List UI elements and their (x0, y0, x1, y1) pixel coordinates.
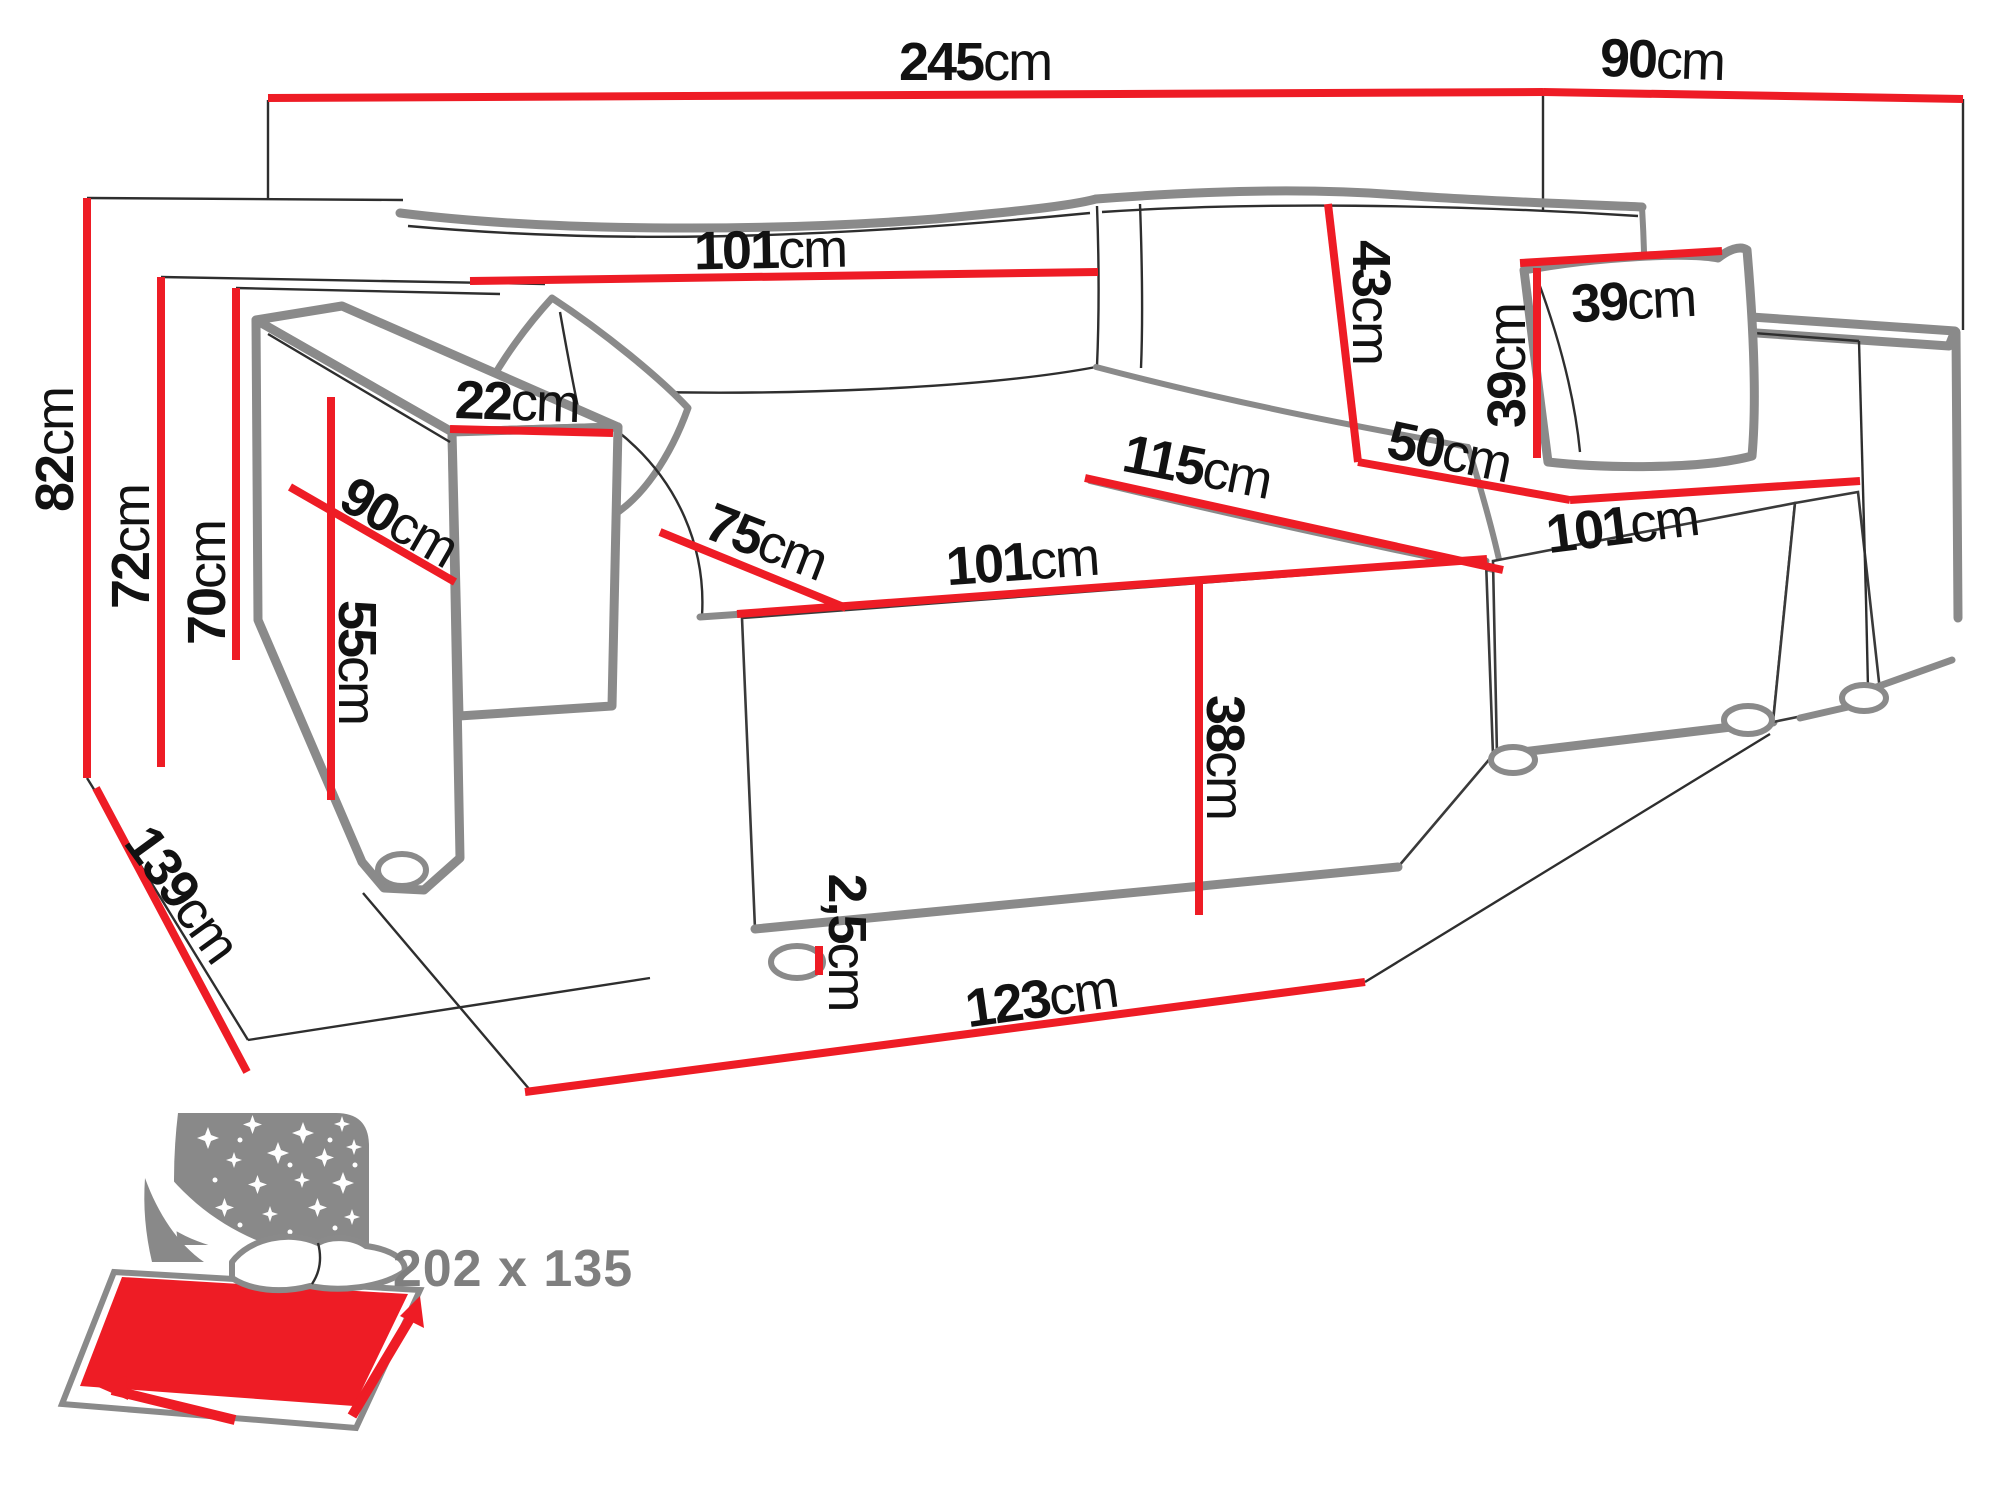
dimension-label-total-width: 245cm (899, 32, 1051, 92)
dimension-armrest-top-height: 70cm (177, 288, 237, 660)
dimension-line-total-depth-top (1543, 92, 1963, 99)
dimension-label-seat-front-height: 38cm (1195, 695, 1255, 819)
dimension-leg-height: 2,5cm (817, 873, 877, 1010)
dimension-label-leg-height: 2,5cm (817, 873, 877, 1010)
dimension-total-depth-top: 90cm (1543, 28, 1963, 99)
dimension-total-width: 245cm (268, 32, 1543, 98)
dimension-label-backrest-height: 72cm (101, 485, 161, 609)
dimension-label-seat-cushion-width: 101cm (944, 527, 1100, 597)
dimension-label-armrest-top-height: 70cm (177, 521, 237, 645)
dimension-label-total-depth-top: 90cm (1599, 28, 1725, 92)
dimension-label-pillow-height: 39cm (1477, 304, 1537, 428)
dimension-label-pillow-width: 39cm (1569, 268, 1696, 334)
dimension-backrest-height: 72cm (101, 277, 161, 767)
dimension-floor-depth: 139cm (96, 788, 251, 1072)
dimension-label-backrest-cushion-height: 43cm (1341, 240, 1401, 364)
dimension-line-front-bottom-width (525, 982, 1365, 1092)
dimension-total-height: 82cm (25, 198, 87, 778)
bed-mattress-top (80, 1277, 408, 1406)
dimension-front-bottom-width: 123cm (525, 959, 1365, 1092)
dimension-label-armrest-width: 22cm (454, 370, 580, 434)
dimension-line-seat-diagonal (1085, 478, 1503, 570)
dimension-label-seat-diagonal: 115cm (1118, 423, 1276, 510)
dimension-label-front-bottom-width: 123cm (962, 959, 1121, 1040)
dimension-seat-depth: 75cm (660, 492, 846, 608)
diagram-canvas: 202 x 135 245cm90cm101cm43cm39cm39cm50cm… (0, 0, 2000, 1500)
dimension-label-armrest-height: 55cm (327, 600, 387, 724)
bed-size-label: 202 x 135 (393, 1240, 633, 1298)
dimension-line-total-width (268, 92, 1543, 98)
dimension-label-backrest-width: 101cm (693, 219, 846, 282)
dimension-label-total-height: 82cm (25, 388, 85, 512)
sofa-dimensions-diagram: 202 x 135 245cm90cm101cm43cm39cm39cm50cm… (0, 0, 2000, 1500)
bed-icon: 202 x 135 (62, 1113, 633, 1428)
